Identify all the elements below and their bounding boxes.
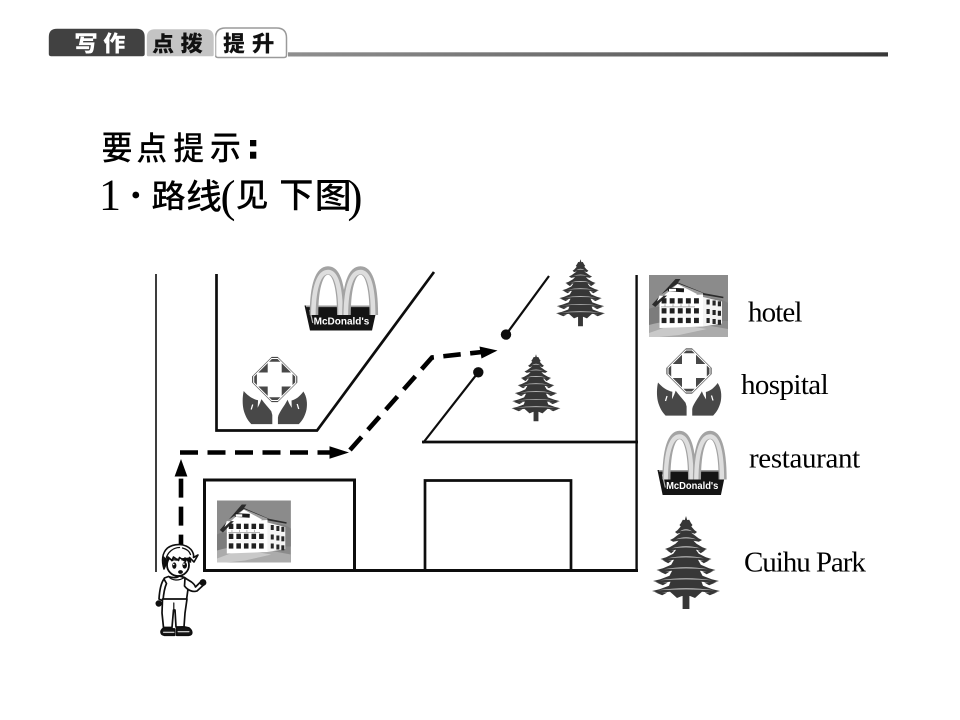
svg-text:restaurant: restaurant	[749, 443, 860, 475]
svg-text:): )	[348, 172, 363, 222]
svg-text:1: 1	[99, 170, 121, 219]
svg-text:hospital: hospital	[741, 369, 829, 401]
svg-text:(: (	[221, 172, 236, 222]
svg-text:hotel: hotel	[748, 297, 802, 329]
svg-text:Cuihu Park: Cuihu Park	[744, 547, 866, 579]
